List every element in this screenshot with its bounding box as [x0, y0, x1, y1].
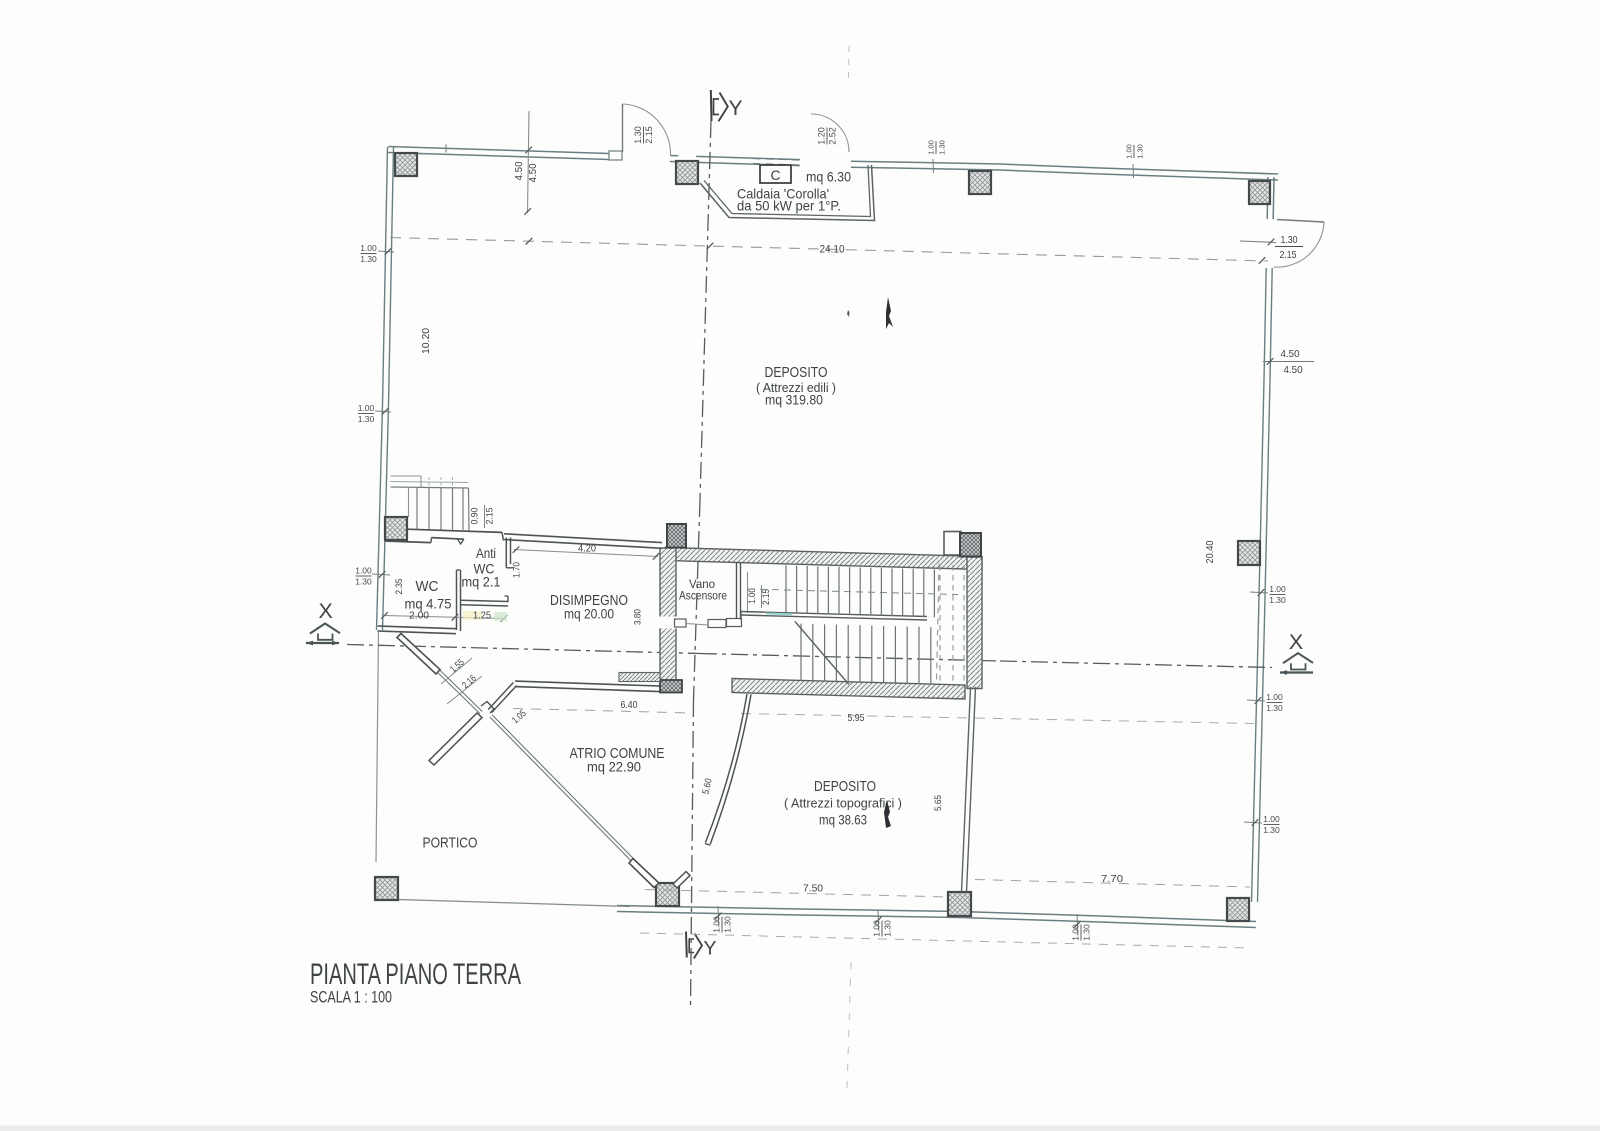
svg-text:1.30: 1.30	[1266, 703, 1283, 713]
svg-text:4.50: 4.50	[527, 163, 539, 182]
svg-text:1.00: 1.00	[360, 243, 377, 253]
svg-text:5.95: 5.95	[848, 712, 865, 724]
svg-text:PIANTA PIANO TERRA: PIANTA PIANO TERRA	[310, 958, 521, 991]
svg-text:2.35: 2.35	[394, 579, 405, 595]
svg-text:1.00: 1.00	[1071, 924, 1081, 941]
svg-text:2.15: 2.15	[644, 126, 654, 144]
svg-text:Y: Y	[729, 97, 743, 120]
svg-text:7.70: 7.70	[1101, 873, 1123, 885]
svg-text:1.00: 1.00	[358, 403, 375, 413]
svg-text:2.15: 2.15	[485, 508, 496, 525]
svg-text:1.30: 1.30	[633, 126, 643, 144]
svg-text:Anti: Anti	[476, 545, 496, 561]
svg-text:Ascensore: Ascensore	[679, 589, 727, 603]
svg-text:2.15: 2.15	[761, 589, 772, 605]
svg-text:1.00: 1.00	[1266, 692, 1283, 702]
svg-text:C: C	[770, 167, 780, 183]
svg-text:SCALA 1 : 100: SCALA 1 : 100	[310, 988, 392, 1007]
svg-text:1.30: 1.30	[360, 254, 377, 264]
svg-text:2.15: 2.15	[1280, 249, 1297, 261]
svg-text:1.00: 1.00	[712, 916, 722, 933]
svg-text:4.50: 4.50	[1281, 348, 1300, 360]
svg-text:2.52: 2.52	[828, 127, 838, 145]
svg-text:( Attrezzi topografici ): ( Attrezzi topografici )	[784, 797, 902, 811]
svg-text:1.00: 1.00	[747, 588, 758, 604]
svg-text:1.30: 1.30	[1082, 924, 1092, 941]
svg-text:WC: WC	[416, 578, 439, 595]
svg-text:20.40: 20.40	[1205, 540, 1216, 563]
svg-text:mq 2.1: mq 2.1	[462, 574, 501, 590]
svg-text:6.40: 6.40	[621, 699, 638, 711]
svg-text:1.00: 1.00	[355, 566, 372, 576]
svg-text:1.30: 1.30	[358, 414, 375, 424]
svg-text:1.30: 1.30	[1136, 144, 1145, 159]
svg-text:1.30: 1.30	[1263, 825, 1280, 835]
svg-text:1.00: 1.00	[1125, 144, 1134, 159]
svg-text:1.30: 1.30	[355, 577, 372, 587]
svg-text:5.65: 5.65	[933, 795, 944, 811]
svg-text:mq 38.63: mq 38.63	[819, 813, 867, 828]
svg-text:X: X	[1289, 630, 1303, 654]
svg-text:1.25: 1.25	[473, 610, 491, 622]
svg-text:mq 6.30: mq 6.30	[806, 169, 851, 185]
svg-text:1.30: 1.30	[883, 920, 893, 937]
svg-text:2.00: 2.00	[409, 610, 429, 622]
svg-text:mq 22.90: mq 22.90	[587, 759, 641, 775]
svg-text:1.00: 1.00	[927, 140, 936, 155]
svg-text:1.70: 1.70	[512, 562, 523, 578]
svg-text:X: X	[319, 599, 333, 623]
svg-text:da 50 kW per 1°P.: da 50 kW per 1°P.	[737, 198, 841, 214]
svg-text:0.90: 0.90	[470, 508, 481, 525]
svg-text:1.30: 1.30	[723, 916, 733, 933]
svg-text:DEPOSITO: DEPOSITO	[765, 364, 828, 381]
svg-text:DEPOSITO: DEPOSITO	[814, 779, 876, 795]
svg-text:PORTICO: PORTICO	[423, 835, 478, 852]
svg-text:1.30: 1.30	[1269, 595, 1286, 605]
svg-text:4.20: 4.20	[578, 543, 596, 555]
svg-text:7.50: 7.50	[803, 883, 823, 895]
svg-text:mq 20.00: mq 20.00	[564, 606, 614, 622]
svg-text:1.00: 1.00	[872, 920, 882, 937]
svg-text:4.50: 4.50	[513, 161, 525, 180]
svg-text:1.00: 1.00	[1269, 584, 1286, 594]
svg-text:4.50: 4.50	[1284, 364, 1303, 376]
svg-text:10.20: 10.20	[420, 328, 432, 354]
svg-text:1.30: 1.30	[1281, 234, 1298, 246]
svg-text:1.00: 1.00	[1263, 814, 1280, 824]
svg-text:Y: Y	[704, 938, 717, 960]
svg-text:mq 319.80: mq 319.80	[765, 392, 823, 408]
svg-text:3.80: 3.80	[633, 609, 644, 625]
svg-text:1.20: 1.20	[817, 127, 827, 145]
svg-text:24.10: 24.10	[820, 244, 845, 256]
svg-text:1.30: 1.30	[938, 140, 947, 155]
